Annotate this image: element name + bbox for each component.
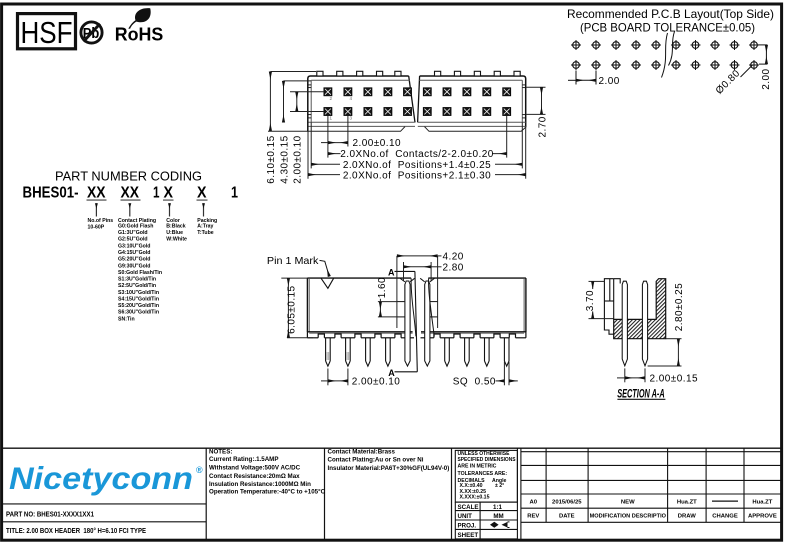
svg-text:APPROVE: APPROVE <box>748 514 777 520</box>
svg-text:HSF: HSF <box>21 15 73 50</box>
svg-text:X: X <box>164 184 174 201</box>
svg-text:Nicetyconn: Nicetyconn <box>9 460 193 496</box>
svg-text:REV: REV <box>527 514 539 520</box>
svg-text:S3:10U"Gold/Tin: S3:10U"Gold/Tin <box>118 290 159 296</box>
svg-text:10-60P: 10-60P <box>88 224 105 230</box>
svg-text:SPECIFIED DIMENSIONS: SPECIFIED DIMENSIONS <box>458 457 517 463</box>
svg-text:Pin 1 Mark: Pin 1 Mark <box>267 255 319 267</box>
svg-text:Operation Temperature:-40°C to: Operation Temperature:-40°C to +105°C <box>209 489 326 496</box>
svg-text:TOLERANCES ARE:: TOLERANCES ARE: <box>458 471 508 477</box>
svg-text:U:Blue: U:Blue <box>166 230 183 236</box>
svg-text:2.70: 2.70 <box>537 116 548 137</box>
svg-text:XX: XX <box>121 184 140 201</box>
svg-text:G0:Gold Flash: G0:Gold Flash <box>118 224 153 230</box>
svg-text:1.60: 1.60 <box>377 277 388 298</box>
svg-text:BHES01-: BHES01- <box>23 184 79 201</box>
svg-text:6.10±0.15: 6.10±0.15 <box>266 135 277 183</box>
svg-text:NOTES:: NOTES: <box>209 448 232 455</box>
svg-text:T:Tube: T:Tube <box>197 230 213 236</box>
svg-text:2.80: 2.80 <box>443 263 464 274</box>
svg-text:Withstand Voltage:500V AC/DC: Withstand Voltage:500V AC/DC <box>209 465 301 472</box>
svg-text:Contact Resistance:20mΩ Max: Contact Resistance:20mΩ Max <box>209 473 300 480</box>
svg-text:SHEET: SHEET <box>458 532 479 539</box>
svg-text:ARE IN METRIC: ARE IN METRIC <box>458 463 497 469</box>
svg-text:G1:3U"Gold: G1:3U"Gold <box>118 230 148 236</box>
svg-text:DATE: DATE <box>559 514 575 520</box>
svg-text:Hua.ZT: Hua.ZT <box>677 500 697 506</box>
svg-text:G5:20U"Gold: G5:20U"Gold <box>118 257 150 263</box>
svg-text:Current Rating:.1.5AMP: Current Rating:.1.5AMP <box>209 456 278 463</box>
svg-text:RoHS: RoHS <box>115 23 164 44</box>
svg-text:2.80±0.25: 2.80±0.25 <box>674 283 685 331</box>
svg-text:SCALE: SCALE <box>458 504 479 511</box>
svg-text:1:1: 1:1 <box>493 504 503 511</box>
svg-text:PROJ.: PROJ. <box>458 523 477 530</box>
svg-text:S6:30U"Gold/Tin: S6:30U"Gold/Tin <box>118 310 159 316</box>
svg-text:2.00±0.10: 2.00±0.10 <box>352 377 400 388</box>
svg-text:PART NO: BHES01-XXXX1XX1: PART NO: BHES01-XXXX1XX1 <box>6 509 94 518</box>
svg-text:Recommended P.C.B Layout(Top: Recommended P.C.B Layout(Top Side) <box>567 7 774 21</box>
svg-text:S0:Gold Flash/Tin: S0:Gold Flash/Tin <box>118 270 162 276</box>
svg-text:2.00±0.15: 2.00±0.15 <box>650 374 698 385</box>
svg-text:4.20: 4.20 <box>443 252 464 263</box>
svg-text:G3:10U"Gold: G3:10U"Gold <box>118 243 150 249</box>
svg-text:Hua.ZT: Hua.ZT <box>752 500 772 506</box>
svg-text:B:Black: B:Black <box>166 224 185 230</box>
svg-text:S4:15U"Gold/Tin: S4:15U"Gold/Tin <box>118 296 159 302</box>
svg-text:± 2°: ± 2° <box>495 483 504 489</box>
svg-text:2.00: 2.00 <box>599 76 620 87</box>
svg-text:MM: MM <box>493 513 503 520</box>
svg-text:G4:15U"Gold: G4:15U"Gold <box>118 250 150 256</box>
svg-text:S2:5U"Gold/Tin: S2:5U"Gold/Tin <box>118 283 156 289</box>
svg-text:Insulation Resistance:1000MΩ M: Insulation Resistance:1000MΩ Min <box>209 481 311 488</box>
svg-text:2.00: 2.00 <box>761 69 772 90</box>
svg-text:PART NUMBER CODING: PART NUMBER CODING <box>55 170 202 184</box>
svg-text:X: X <box>197 184 207 201</box>
svg-text:DRAW: DRAW <box>678 514 696 520</box>
svg-text:Contact Material:Brass: Contact Material:Brass <box>328 448 396 455</box>
svg-text:Insulator Material:PA6T+30%GF(: Insulator Material:PA6T+30%GF(UL94V-0) <box>328 465 450 472</box>
svg-text:Contact Plating:Au or Sn over: Contact Plating:Au or Sn over Ni <box>328 457 424 464</box>
svg-text:G2:5U"Gold: G2:5U"Gold <box>118 237 148 243</box>
svg-text:CHANGE: CHANGE <box>712 514 738 520</box>
svg-text:2.0XNo.of Positions+2.1±0.30: 2.0XNo.of Positions+2.1±0.30 <box>343 170 491 181</box>
svg-text:1: 1 <box>153 184 160 201</box>
svg-text:®: ® <box>196 465 203 475</box>
svg-text:(PCB BOARD TOLERANCE±0.05): (PCB BOARD TOLERANCE±0.05) <box>580 21 755 35</box>
svg-text:4.30±0.15: 4.30±0.15 <box>279 135 290 183</box>
svg-text:3.70: 3.70 <box>585 290 596 311</box>
svg-text:SN:Tin: SN:Tin <box>118 316 135 322</box>
svg-text:XX: XX <box>87 184 106 201</box>
svg-text:W:White: W:White <box>166 237 187 243</box>
svg-text:2.00±0.10: 2.00±0.10 <box>293 135 304 183</box>
svg-text:MODIFICATION DESCRIPTIO: MODIFICATION DESCRIPTIO <box>590 514 667 520</box>
svg-text:A:Tray: A:Tray <box>197 224 213 230</box>
svg-text:No.of Pins: No.of Pins <box>88 218 114 224</box>
svg-text:TITLE: 2.00 BOX HEADER 180° H: TITLE: 2.00 BOX HEADER 180° H=6.10 FCI T… <box>6 526 146 535</box>
svg-text:NEW: NEW <box>621 500 635 506</box>
svg-text:G9:30U"Gold: G9:30U"Gold <box>118 263 150 269</box>
svg-text:UNIT: UNIT <box>458 513 473 520</box>
svg-text:2015/06/25: 2015/06/25 <box>552 500 582 506</box>
svg-text:6.05±0.15: 6.05±0.15 <box>287 285 298 333</box>
svg-text:S1:3U"Gold/Tin: S1:3U"Gold/Tin <box>118 277 156 283</box>
svg-text:A0: A0 <box>530 500 538 506</box>
svg-text:1: 1 <box>231 184 238 201</box>
svg-text:SQ 0.50: SQ 0.50 <box>453 377 496 388</box>
svg-text:X.XXX:±0.15: X.XXX:±0.15 <box>460 495 490 501</box>
svg-text:A: A <box>388 267 395 277</box>
svg-text:S5:20U"Gold/Tin: S5:20U"Gold/Tin <box>118 303 159 309</box>
